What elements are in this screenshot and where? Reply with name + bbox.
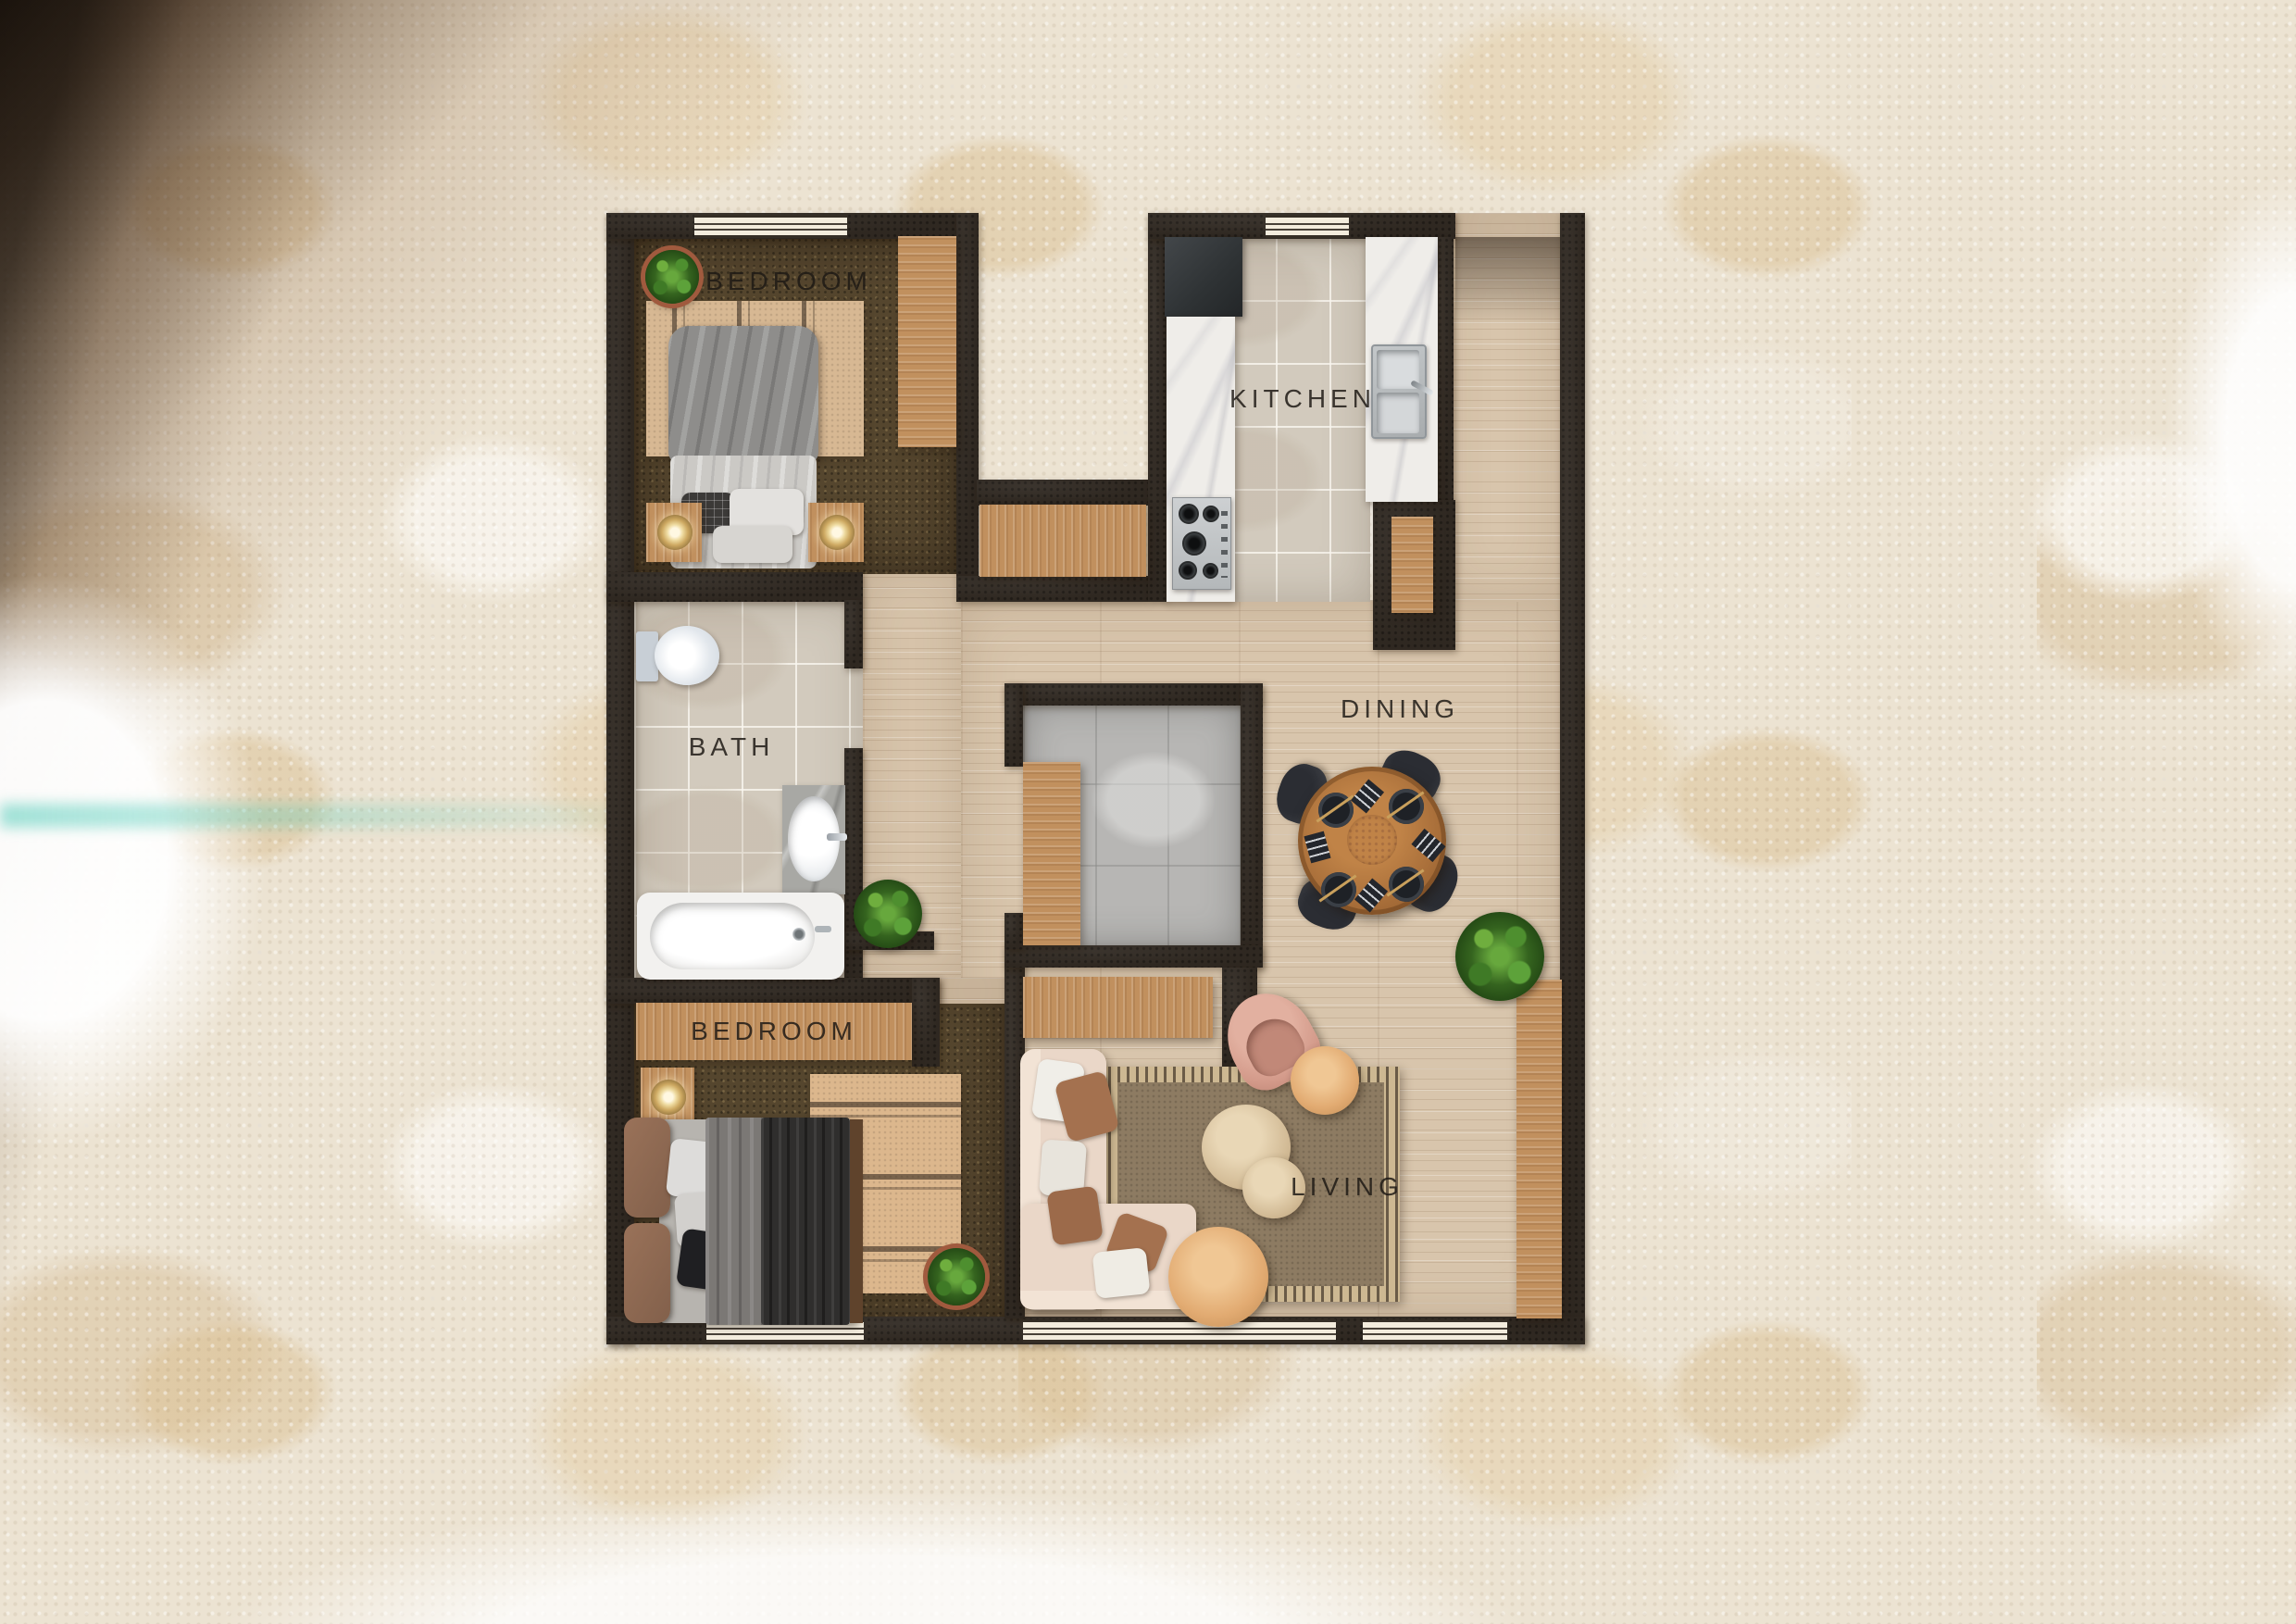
place-setting-2	[1318, 793, 1354, 828]
window-bedroom-top	[694, 215, 847, 238]
table-centerpiece	[1347, 815, 1397, 865]
plant-hallway	[854, 880, 922, 948]
room-label-bedroom-top: BEDROOM	[705, 267, 872, 296]
sofa-pillow-4	[1046, 1186, 1104, 1246]
bathtub-drain	[792, 928, 805, 941]
wall-bedroom-stub	[912, 978, 940, 1067]
wall-closet-bottom	[1004, 945, 1263, 968]
wardrobe-top-bedroom	[898, 236, 956, 447]
floor-plan-canvas: BEDROOM BATH KITCHEN DINING	[0, 0, 2296, 1624]
tv-console	[1023, 977, 1213, 1038]
closet-cabinet	[1023, 762, 1080, 945]
coffee-table	[1168, 1227, 1268, 1327]
wall-island-right	[1437, 237, 1454, 503]
bed-bottom-throw	[761, 1118, 850, 1325]
room-label-kitchen: KITCHEN	[1229, 384, 1376, 414]
lamp-top-right	[819, 515, 855, 550]
stove-knobs	[1221, 511, 1228, 578]
wall-right	[1560, 213, 1585, 1344]
entry-door-shadow	[1455, 237, 1560, 325]
wall-closet-top	[1004, 683, 1261, 706]
window-living-1	[1023, 1319, 1336, 1343]
stove-burner-5	[1203, 563, 1218, 579]
kitchen-sink	[1371, 344, 1427, 439]
plant-bottom-bedroom	[928, 1248, 985, 1305]
lamp-top-left	[657, 515, 693, 550]
bedroom-doorway	[940, 978, 1004, 1004]
window-kitchen	[1266, 215, 1349, 238]
room-label-dining: DINING	[1341, 694, 1459, 724]
stove-burner-2	[1203, 506, 1219, 522]
lamp-bottom	[651, 1080, 686, 1115]
bed-bottom-frame	[850, 1119, 863, 1323]
wall-closet-left-upper	[1004, 683, 1023, 767]
kitchen-south-cabinet	[1391, 517, 1433, 613]
gas-stove	[1172, 497, 1231, 590]
stove-burner-1	[1179, 504, 1199, 524]
living-wall-console	[1516, 980, 1562, 1318]
sofa-pillow-6	[1092, 1247, 1151, 1299]
place-setting-4	[1389, 867, 1424, 902]
bathtub-basin	[650, 903, 815, 969]
toilet-bowl	[655, 626, 719, 685]
side-table	[1291, 1046, 1359, 1115]
wall-bedroom-right	[956, 213, 979, 576]
pillow-white-2	[713, 526, 792, 563]
headboard-cushion-1	[624, 1118, 670, 1218]
stove-burner-4	[1179, 561, 1197, 580]
sink-faucet	[827, 833, 847, 841]
place-setting-3	[1321, 872, 1356, 907]
wall-niche-bottom	[956, 576, 1148, 602]
wall-bath-right-upper	[844, 600, 863, 668]
bed-top-duvet	[668, 326, 818, 465]
bathtub-faucet	[815, 926, 831, 932]
wall-niche-top	[977, 480, 1148, 506]
room-label-living: LIVING	[1291, 1172, 1404, 1202]
room-label-bedroom-bottom: BEDROOM	[691, 1017, 857, 1046]
wall-closet-right	[1241, 683, 1263, 968]
background-teal-streak	[0, 804, 704, 828]
window-living-2	[1363, 1319, 1507, 1343]
wall-closet-left-lower	[1004, 913, 1023, 949]
room-label-bath: BATH	[689, 732, 775, 762]
headboard-cushion-2	[624, 1223, 670, 1323]
refrigerator	[1165, 237, 1242, 317]
hall-console-shelf	[980, 505, 1146, 577]
place-setting-1	[1389, 789, 1424, 824]
sink-basin-2	[1377, 393, 1419, 433]
plant-living	[1455, 912, 1544, 1001]
wall-bath-top	[606, 572, 863, 602]
plant-top-bedroom	[645, 250, 699, 304]
stove-burner-3	[1182, 531, 1206, 556]
wall-bedroom-bottom-top	[606, 978, 940, 1004]
